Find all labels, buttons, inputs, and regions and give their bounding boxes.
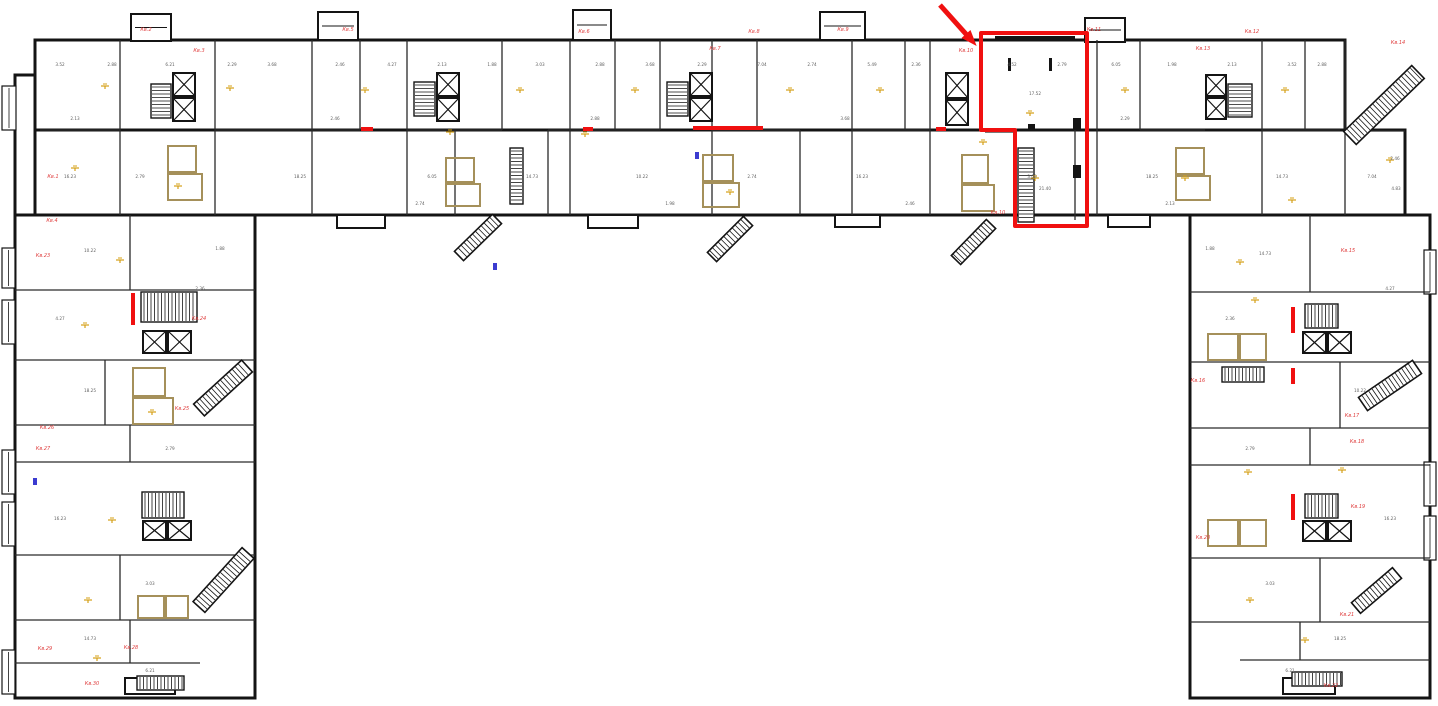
dimension-label: 16.23: [1384, 516, 1396, 521]
dimension-label: 1.98: [1167, 62, 1177, 67]
apartment-label: Кв.27: [36, 446, 51, 452]
apartment-label: Кв.25: [175, 406, 189, 412]
dimension-label: 14.73: [84, 636, 96, 641]
dimension-label: 3.03: [1265, 581, 1275, 586]
bay-window: [1108, 215, 1150, 227]
apartment-label: Кв.24: [192, 316, 206, 322]
dimension-label: 10.22: [84, 248, 96, 253]
apartment-label: Кв.28: [124, 645, 138, 651]
firewall-mark: [1291, 368, 1295, 384]
apartment-label: Кв.7: [709, 46, 721, 52]
pointer-arrow-shaft: [940, 5, 969, 37]
balcony-diagonal: [454, 214, 501, 260]
dimension-label: 6.05: [427, 174, 437, 179]
dimension-label: 17.52: [1029, 91, 1041, 96]
dimension-label: 18.25: [84, 388, 96, 393]
apartment-label: Кв.19: [1351, 504, 1365, 510]
stair-run: [1305, 494, 1338, 518]
apartment-label: Кв.4: [46, 218, 57, 224]
dimension-label: 2.36: [1225, 316, 1235, 321]
dimension-label: 2.36: [195, 286, 205, 291]
stair-run: [1305, 304, 1338, 328]
apartment-label: Кв.9: [837, 27, 848, 33]
apartment-label: Кв.3: [193, 48, 204, 54]
dimension-label: 2.46: [905, 201, 915, 206]
apartment-label: Кв.17: [1345, 413, 1360, 419]
dimension-label: 1.88: [487, 62, 497, 67]
dimension-label: 14.73: [1276, 174, 1288, 179]
firewall-mark: [1291, 307, 1295, 333]
stair-run: [137, 676, 184, 690]
dimension-label: 1.88: [215, 246, 225, 251]
dimension-label: 3.68: [645, 62, 655, 67]
dimension-label: 4.27: [387, 62, 397, 67]
electrical-mark: [493, 263, 497, 270]
dimension-label: 3.03: [145, 581, 155, 586]
apartment-label: Кв.6: [578, 29, 589, 35]
dimension-label: 2.46: [335, 62, 345, 67]
apartment-label: Кв.23: [36, 253, 50, 259]
dimension-label: 4.52: [1007, 62, 1017, 67]
dimension-label: 4.27: [55, 316, 65, 321]
dimension-label: 2.36: [911, 62, 921, 67]
electrical-mark: [695, 152, 699, 159]
bay-window: [835, 215, 880, 227]
apartment-label: Кв.13: [1196, 46, 1210, 52]
apartment-label: Кв.15: [1341, 248, 1355, 254]
firewall-mark: [361, 127, 373, 131]
dimension-label: 6.21: [145, 668, 155, 673]
apartment-label: Кв.20: [1196, 535, 1210, 541]
dimension-label: 10.22: [1354, 388, 1366, 393]
apartment-label: Кв.14: [1391, 40, 1405, 46]
dimension-label: 2.79: [1245, 446, 1255, 451]
dimension-label: 18.25: [1146, 174, 1158, 179]
apartment-label: Кв.1: [47, 174, 58, 180]
dimension-label: 2.74: [747, 174, 757, 179]
dimension-label: 14.73: [1259, 251, 1271, 256]
dimension-label: 21.40: [1039, 186, 1051, 191]
dimension-label: 6.21: [1285, 668, 1295, 673]
apartment-label: Кв.30: [85, 681, 99, 687]
dimension-label: 5.49: [867, 62, 877, 67]
dimension-label: 6.05: [1111, 62, 1121, 67]
dimension-label: 16.23: [856, 174, 868, 179]
stair-run: [510, 148, 523, 204]
dimension-label: 16.23: [64, 174, 76, 179]
apartment-label: Кв.5: [342, 27, 353, 33]
dimension-label: 2.13: [1227, 62, 1237, 67]
apartment-label: Кв.11: [1087, 27, 1101, 33]
dimension-label: 18.25: [294, 174, 306, 179]
apartment-label: Кв.8: [748, 29, 759, 35]
dimension-label: 4.83: [1391, 186, 1401, 191]
apartment-label: Кв.12: [1245, 29, 1259, 35]
dimension-label: 2.46: [330, 116, 340, 121]
stair-run: [141, 292, 197, 322]
interior-wall-detail: [1073, 165, 1081, 178]
dimension-label: 2.79: [135, 174, 145, 179]
dimension-label: 2.74: [415, 201, 425, 206]
dimension-label: 7.04: [1367, 174, 1377, 179]
apartment-label: Кв.22: [1324, 683, 1338, 689]
firewall-mark: [936, 127, 946, 131]
interior-wall-detail: [1049, 58, 1052, 71]
dimension-label: 1.88: [1205, 246, 1215, 251]
apartment-label: Кв.2: [140, 27, 151, 33]
dimension-label: 2.79: [1057, 62, 1067, 67]
dimension-label: 3.52: [55, 62, 65, 67]
dimension-label: 2.88: [1317, 62, 1327, 67]
firewall-mark: [583, 127, 593, 131]
dimension-label: 1.98: [665, 201, 675, 206]
electrical-mark: [33, 478, 37, 485]
bay-window: [588, 215, 638, 228]
dimension-label: 14.73: [526, 174, 538, 179]
firewall-mark: [131, 293, 135, 325]
dimension-label: 3.03: [535, 62, 545, 67]
floor-plan-drawing: 3.522.886.212.293.682.464.272.131.883.03…: [0, 0, 1438, 706]
apartment-label: Кв.29: [38, 646, 52, 652]
stair-run: [1228, 84, 1252, 117]
dimension-label: 7.04: [757, 62, 767, 67]
dimension-label: 2.88: [590, 116, 600, 121]
apartment-label: Кв.10: [991, 210, 1005, 216]
dimension-label: 16.23: [54, 516, 66, 521]
building-outline: [15, 215, 255, 698]
interior-wall-detail: [1028, 124, 1035, 131]
dimension-label: 6.21: [165, 62, 175, 67]
dimension-label: 18.25: [1334, 636, 1346, 641]
dimension-label: 2.13: [437, 62, 447, 67]
dimension-label: 4.27: [1385, 286, 1395, 291]
dimension-label: 2.13: [70, 116, 80, 121]
dimension-label: 2.88: [107, 62, 117, 67]
dimension-label: 2.29: [227, 62, 237, 67]
apartment-label: Кв.10: [959, 48, 973, 54]
apartment-label: Кв.21: [1340, 612, 1354, 618]
dimension-label: 3.68: [267, 62, 277, 67]
dimension-label: 2.46: [1390, 156, 1400, 161]
floor-plan-page: 3.522.886.212.293.682.464.272.131.883.03…: [0, 0, 1438, 706]
firewall-mark: [1291, 494, 1295, 520]
balcony-diagonal: [951, 219, 995, 264]
apartment-label: Кв.18: [1350, 439, 1364, 445]
bay-window: [337, 215, 385, 228]
dimension-label: 2.88: [595, 62, 605, 67]
dimension-label: 2.29: [1120, 116, 1130, 121]
apartment-label: Кв.16: [1191, 378, 1205, 384]
interior-wall-detail: [995, 36, 1075, 41]
dimension-label: 10.22: [636, 174, 648, 179]
building-outline: [35, 130, 1405, 215]
interior-wall-detail: [1073, 118, 1081, 130]
dimension-label: 2.13: [1165, 201, 1175, 206]
apartment-label: Кв.26: [40, 425, 54, 431]
dimension-label: 2.29: [697, 62, 707, 67]
dimension-label: 2.79: [165, 446, 175, 451]
dimension-label: 2.74: [807, 62, 817, 67]
dimension-label: 3.52: [1287, 62, 1297, 67]
firewall-mark: [693, 126, 763, 130]
dimension-label: 3.68: [840, 116, 850, 121]
dimension-label: 3.03: [1027, 174, 1037, 179]
